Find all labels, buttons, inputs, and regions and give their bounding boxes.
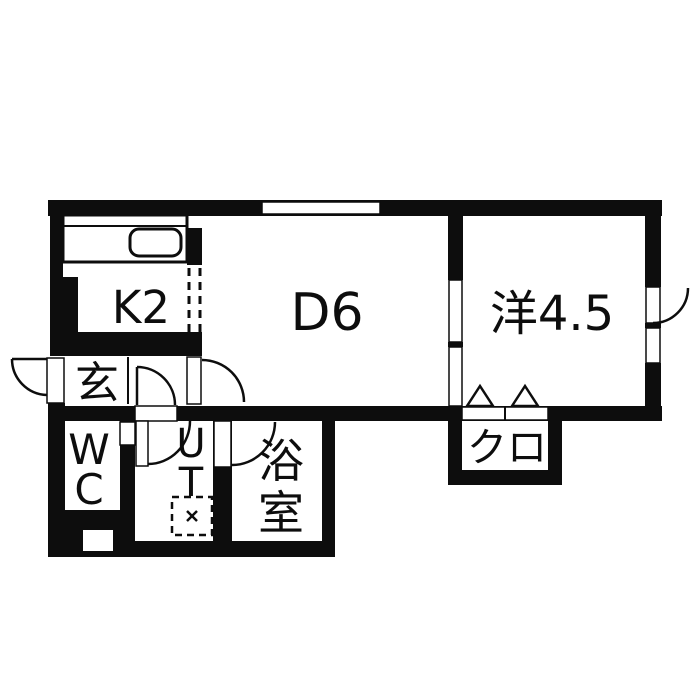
kitchen-sink-icon	[130, 229, 181, 256]
dining-door-arc-icon	[202, 360, 244, 402]
label-bathroom-line2: 室	[258, 486, 304, 540]
bifold-door-triangle-1-icon	[467, 386, 493, 406]
window-top-icon	[262, 202, 380, 214]
wall-dining-western-upper	[448, 215, 463, 280]
wall-pipe-space	[50, 277, 78, 334]
wall-right-lower	[645, 363, 661, 421]
label-entrance: 玄	[75, 358, 119, 409]
label-dining: D6	[290, 283, 363, 343]
sliding-door-panel-1-icon	[449, 280, 462, 342]
hall-door-arc-icon	[137, 367, 175, 405]
closet-bifold-doors	[467, 386, 538, 406]
western-door-gap-lower	[646, 328, 660, 363]
utility-door-leaf-icon	[136, 421, 148, 466]
label-kitchen: K2	[112, 281, 170, 334]
exterior-step-notch	[83, 530, 113, 551]
bifold-door-triangle-2-icon	[512, 386, 538, 406]
label-closet: クロ	[467, 425, 547, 471]
toilet-door-gap	[120, 422, 135, 445]
western-door-gap-upper	[646, 287, 660, 323]
hall-utility-doorway	[135, 406, 177, 421]
wall-closet-bottom	[448, 470, 562, 485]
floor-plan: K2 D6 洋4.5 玄 W C U T 浴 室 クロ	[0, 0, 700, 700]
dining-door-leaf-icon	[187, 357, 201, 404]
wall-kitchen-counter-end	[187, 228, 202, 265]
label-toilet-line2: C	[74, 465, 103, 514]
label-utility-line2: T	[178, 460, 204, 506]
floor-plan-page: K2 D6 洋4.5 玄 W C U T 浴 室 クロ	[0, 0, 700, 700]
wall-right-upper	[645, 200, 661, 287]
label-western-room: 洋4.5	[490, 286, 614, 342]
wall-bath-right	[322, 421, 335, 557]
bath-door-leaf-icon	[214, 421, 231, 467]
entrance-door-arc-icon	[12, 359, 47, 395]
sliding-door-panel-2-icon	[449, 347, 462, 406]
wall-entrance-top	[50, 332, 202, 356]
entrance-door-leaf-icon	[47, 358, 64, 403]
label-bathroom-line1: 浴	[258, 434, 304, 488]
